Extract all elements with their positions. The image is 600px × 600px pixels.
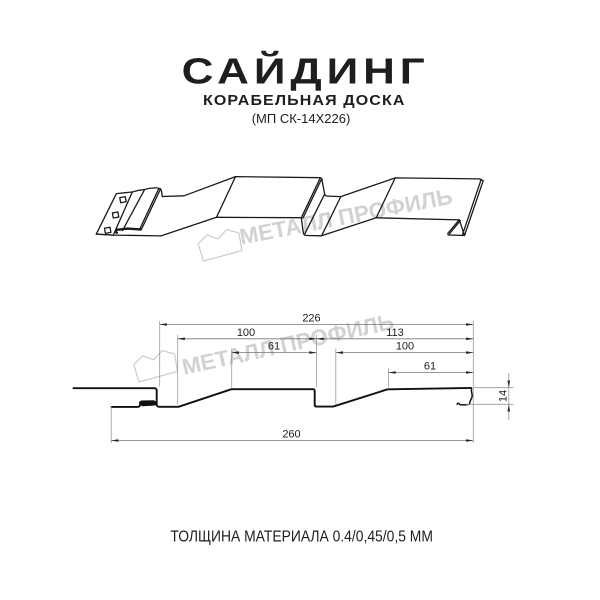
svg-text:61: 61 (424, 361, 436, 373)
svg-text:КОРАБЕЛЬНАЯ ДОСКА: КОРАБЕЛЬНАЯ ДОСКА (203, 93, 406, 109)
svg-text:МЕТАЛЛ ПРОФИЛЬ: МЕТАЛЛ ПРОФИЛЬ (180, 309, 396, 380)
svg-text:100: 100 (237, 327, 255, 339)
svg-text:САЙДИНГ: САЙДИНГ (182, 50, 430, 92)
svg-text:14: 14 (497, 390, 509, 402)
svg-text:МЕТАЛЛ ПРОФИЛЬ: МЕТАЛЛ ПРОФИЛЬ (237, 184, 454, 250)
svg-text:260: 260 (282, 429, 300, 441)
svg-text:61: 61 (268, 341, 280, 353)
svg-text:(МП СК-14Х226): (МП СК-14Х226) (252, 111, 351, 126)
svg-text:226: 226 (302, 313, 320, 325)
svg-text:ТОЛЩИНА МАТЕРИАЛА 0.4/0,45/0,5: ТОЛЩИНА МАТЕРИАЛА 0.4/0,45/0,5 ММ (170, 529, 433, 546)
svg-text:100: 100 (396, 341, 414, 353)
svg-text:113: 113 (386, 327, 404, 339)
